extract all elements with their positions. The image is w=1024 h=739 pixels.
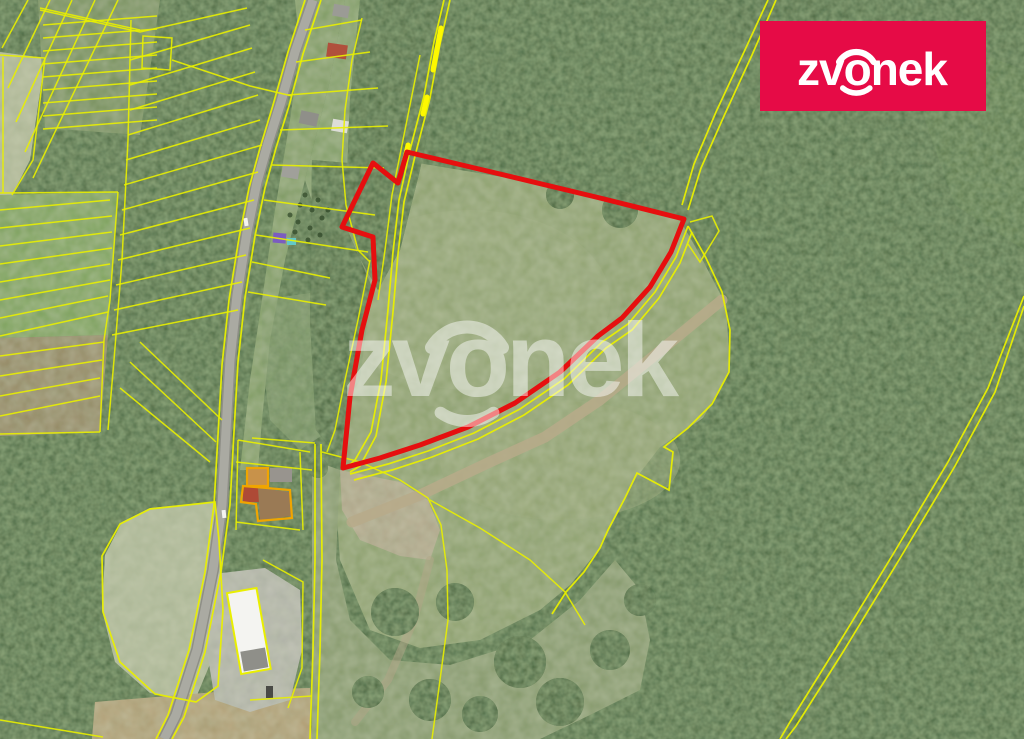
aerial-map-image: zvonek zvonek (0, 0, 1024, 739)
map-canvas: zvonek zvonek (0, 0, 1024, 739)
vehicle-on-road-2 (222, 510, 227, 518)
watermark-text: zvonek (343, 302, 680, 419)
zvonek-logo: zvonek (760, 21, 986, 111)
field-left-brown (0, 335, 108, 436)
zvonek-watermark: zvonek (343, 302, 680, 421)
truck (266, 686, 273, 698)
logo-text: zvonek (797, 43, 948, 95)
